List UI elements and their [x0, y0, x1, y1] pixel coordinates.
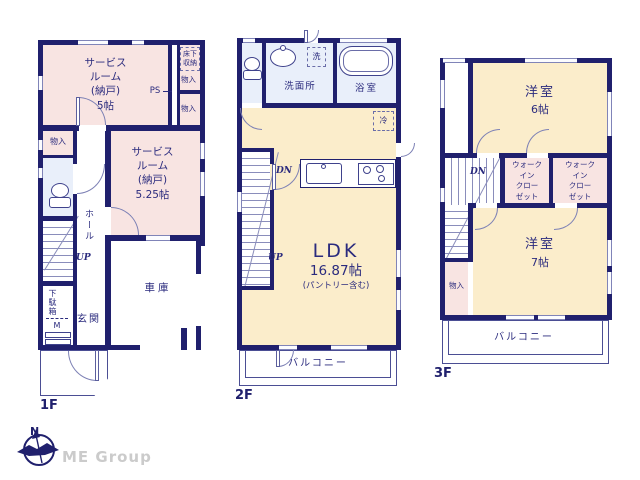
up-label-1f: UP	[76, 253, 91, 263]
window	[38, 76, 43, 90]
ldk-size-label: 16.87帖	[300, 263, 372, 281]
stove-burner	[376, 165, 384, 173]
toilet-tank	[49, 197, 71, 208]
floor-label-1f: 1F	[40, 398, 58, 413]
balcony-label-3f: バルコニー	[492, 331, 556, 344]
door-opening	[79, 125, 106, 131]
washer-label: 洗	[307, 52, 326, 62]
floor-label-3f: 3F	[434, 366, 452, 381]
western-6-size-label: 6帖	[505, 103, 575, 117]
room-label-closet-a: 物入	[177, 75, 200, 85]
window	[146, 235, 170, 241]
wall	[177, 90, 200, 94]
wall	[43, 216, 77, 221]
stove-burner	[363, 166, 371, 174]
wall	[181, 328, 187, 350]
window	[440, 80, 445, 108]
window	[607, 272, 612, 294]
window	[200, 143, 205, 159]
window	[340, 38, 387, 43]
door-leaf	[95, 350, 99, 381]
wall	[196, 326, 201, 350]
stairs-3f-upper	[445, 158, 500, 205]
room-label-western-7: 洋室	[505, 237, 575, 254]
compass-n-label: N	[30, 425, 39, 438]
window	[443, 58, 465, 63]
window	[78, 40, 108, 45]
door-opening	[477, 153, 499, 158]
window	[38, 168, 43, 178]
wall	[270, 152, 274, 164]
window	[607, 92, 612, 136]
window	[396, 290, 401, 310]
wall	[38, 345, 140, 350]
wall	[196, 241, 201, 274]
room-label-hall: ホール	[82, 209, 95, 242]
room-label-washroom: 洗面所	[268, 81, 332, 93]
floor-plan-canvas: サービス ルーム (納戸) 5帖 床下 収納 物入 物入 PS サービス ルーム…	[0, 0, 640, 480]
wall	[168, 45, 172, 125]
wall	[445, 258, 473, 262]
ps-connector	[163, 91, 172, 92]
shoe-cabinet-divider	[46, 318, 68, 319]
door-opening	[527, 153, 548, 158]
wall	[43, 125, 200, 131]
shoe-shelf	[45, 332, 71, 338]
up-label-2f: UP	[268, 253, 283, 263]
room-label-entrance: 玄関	[71, 313, 107, 326]
balcony-label-2f: バルコニー	[286, 357, 350, 370]
floor-label-2f: 2F	[235, 388, 253, 403]
shoe-cabinet-m-label: M	[45, 321, 69, 331]
stairs-2f	[242, 152, 270, 290]
dn-label-2f: DN	[276, 166, 292, 176]
wall	[445, 153, 607, 158]
ps-label: PS	[147, 86, 163, 97]
shoe-shelf	[45, 339, 71, 345]
door-leaf	[276, 350, 280, 367]
door-arc	[401, 143, 415, 157]
wall	[262, 43, 266, 103]
room-label-service-room-1: サービス ルーム (納戸) 5帖	[53, 56, 158, 113]
room-label-closet-left: 物入	[43, 137, 73, 147]
room-label-garage: 車庫	[134, 282, 182, 296]
wall	[43, 281, 77, 286]
window	[525, 58, 577, 63]
ldk-note-label: (パントリー含む)	[290, 281, 382, 292]
kitchen-tap	[321, 164, 326, 169]
compass-icon: N	[14, 422, 62, 472]
dn-label-3f: DN	[470, 167, 486, 177]
bathtub-inner	[343, 50, 389, 72]
window	[132, 40, 144, 45]
stove-burner	[378, 175, 385, 182]
toilet-tank	[243, 70, 262, 80]
shoe-cabinet-label: 下駄箱	[47, 289, 58, 316]
wall	[468, 208, 473, 262]
room-label-wic-2: ウォーク イン クロー ゼット	[553, 160, 607, 202]
room-label-wic-1: ウォーク イン クロー ゼット	[505, 160, 549, 202]
western-7-size-label: 7帖	[505, 256, 575, 270]
room-label-ldk: LDK	[300, 239, 372, 264]
door-leaf	[304, 30, 308, 43]
room-label-western-6: 洋室	[505, 85, 575, 102]
window	[200, 172, 205, 196]
room-label-service-room-2: サービス ルーム (納戸) 5.25帖	[108, 145, 197, 202]
toilet-icon	[51, 183, 69, 198]
room-label-closet-3f: 物入	[445, 281, 468, 291]
logo-text: ME Group	[62, 448, 152, 466]
room-label-closet-b: 物入	[177, 104, 200, 114]
wall	[270, 190, 274, 290]
wall	[43, 155, 73, 158]
sink-tap	[280, 45, 286, 51]
wall	[468, 63, 473, 158]
room-label-underfloor-storage: 床下 収納	[181, 50, 199, 68]
room-label-bathroom: 浴室	[337, 83, 396, 95]
window	[237, 192, 242, 212]
fridge-label: 冷	[373, 116, 394, 126]
window	[607, 240, 612, 266]
window	[396, 250, 401, 277]
wall	[242, 103, 396, 108]
window	[440, 188, 445, 202]
window	[243, 38, 255, 43]
toilet-icon	[244, 57, 260, 71]
door-arc	[77, 164, 105, 194]
